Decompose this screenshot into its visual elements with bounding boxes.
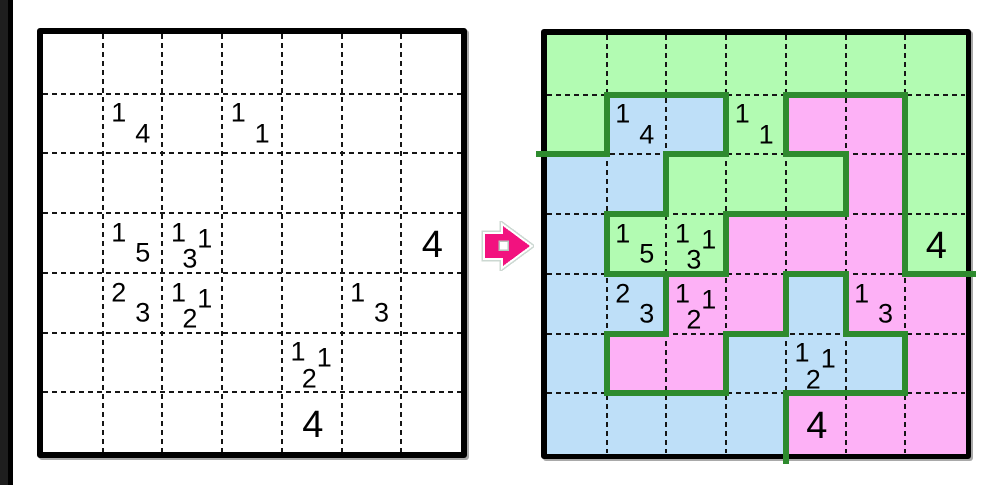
clue-digit: 4 [135, 120, 150, 147]
region-border-segment [783, 271, 849, 277]
clue-cell: 4 [282, 392, 342, 452]
clue-digit: 3 [878, 300, 893, 327]
clue-digit: 5 [135, 240, 150, 267]
solution-cell [846, 35, 906, 95]
solution-cell [786, 154, 846, 214]
solution-cell [547, 274, 607, 334]
clue-digit: 3 [639, 300, 654, 327]
solution-cell [726, 393, 786, 453]
clue-digit: 2 [615, 280, 630, 307]
clue-digit: 1 [197, 285, 212, 312]
clue-cell: 121 [162, 273, 222, 333]
region-border-segment [663, 151, 669, 217]
clue-digit: 1 [350, 279, 365, 306]
solution-cell [726, 35, 786, 95]
region-border-segment [783, 92, 849, 98]
solution-cell [726, 214, 786, 274]
solution-grid: 141115131423121131214 [541, 29, 971, 459]
solution-cell [547, 334, 607, 394]
solution-cell [726, 154, 786, 214]
clue-digit: 4 [639, 121, 654, 148]
clue-cell: 14 [607, 95, 667, 155]
clue-cell: 121 [282, 333, 342, 393]
clue-digit: 1 [794, 340, 809, 367]
region-border-segment [902, 92, 908, 158]
solution-cell [905, 95, 965, 155]
clue-digit: 4 [422, 226, 443, 264]
clue-cell: 11 [222, 94, 282, 154]
clue-digit: 1 [111, 219, 126, 246]
solution-cell [666, 154, 726, 214]
solution-cell [786, 274, 846, 334]
solution-cell [905, 154, 965, 214]
solution-cell [846, 95, 906, 155]
solution-cell [547, 154, 607, 214]
clue-cell: 15 [103, 213, 163, 273]
transform-arrow-icon [472, 221, 534, 271]
clue-digit: 3 [182, 246, 197, 273]
solution-cell [905, 334, 965, 394]
clue-digit: 2 [686, 306, 701, 333]
arrow-hole [499, 241, 508, 250]
clue-digit: 1 [735, 101, 750, 128]
solution-cell [846, 334, 906, 394]
solution-cell [666, 334, 726, 394]
solution-cell [905, 393, 965, 453]
clue-digit: 3 [135, 299, 150, 326]
region-border-segment [663, 390, 729, 396]
clue-digit: 1 [317, 345, 332, 372]
clue-digit: 1 [171, 219, 186, 246]
clue-digit: 1 [675, 280, 690, 307]
clue-digit: 2 [302, 365, 317, 392]
clue-digit: 1 [255, 120, 270, 147]
clue-digit: 3 [686, 247, 701, 274]
region-border-segment [723, 211, 789, 217]
clue-digit: 4 [302, 406, 323, 444]
clue-digit: 2 [182, 305, 197, 332]
clue-cell: 131 [666, 214, 726, 274]
region-border-segment [843, 151, 849, 217]
clue-digit: 2 [111, 279, 126, 306]
region-border-segment [663, 151, 729, 157]
clue-digit: 1 [675, 220, 690, 247]
solution-cell [905, 274, 965, 334]
solution-cell [846, 393, 906, 453]
clue-digit: 1 [231, 100, 246, 127]
region-border-segment [604, 390, 670, 396]
region-border-segment [783, 271, 789, 337]
clue-digit: 1 [615, 101, 630, 128]
clue-digit: 1 [821, 346, 836, 373]
clue-digit: 1 [701, 226, 716, 253]
clue-digit: 1 [701, 286, 716, 313]
solution-cell [786, 95, 846, 155]
clue-digit: 1 [854, 280, 869, 307]
clue-cell: 4 [786, 393, 846, 453]
solution-cell [547, 35, 607, 95]
clue-cell: 23 [103, 273, 163, 333]
region-border-segment [536, 151, 610, 157]
region-border-segment [723, 331, 729, 397]
solution-cell [786, 214, 846, 274]
region-border-segment [902, 151, 908, 217]
clue-cell: 15 [607, 214, 667, 274]
solution-cell [547, 95, 607, 155]
solution-cell [607, 334, 667, 394]
region-border-segment [843, 390, 909, 396]
clue-cell: 13 [342, 273, 402, 333]
screen-edge-bar [0, 0, 13, 485]
clue-digit: 4 [926, 227, 947, 265]
clue-digit: 4 [806, 407, 827, 445]
solution-cell [786, 35, 846, 95]
solution-cell [726, 334, 786, 394]
solution-cell [607, 154, 667, 214]
solution-cell [666, 95, 726, 155]
clue-digit: 2 [806, 366, 821, 393]
region-border-segment [783, 151, 849, 157]
solution-cell [666, 393, 726, 453]
clue-digit: 1 [290, 339, 305, 366]
clue-cell: 131 [162, 213, 222, 273]
solution-cell [905, 35, 965, 95]
region-border-segment [663, 92, 729, 98]
region-border-segment [902, 331, 908, 397]
clue-cell: 23 [607, 274, 667, 334]
clue-digit: 1 [111, 100, 126, 127]
solution-cell [607, 35, 667, 95]
region-border-segment [843, 92, 909, 98]
solution-cell [666, 35, 726, 95]
clue-digit: 1 [615, 220, 630, 247]
clue-cell: 121 [666, 274, 726, 334]
puzzle-illustration: { "page": { "background": "#ffffff", "ed… [0, 0, 999, 485]
region-border-segment [783, 211, 849, 217]
region-border-segment [604, 331, 610, 397]
solution-cell [726, 274, 786, 334]
clue-cell: 11 [726, 95, 786, 155]
clue-digit: 3 [374, 299, 389, 326]
solution-cell [547, 393, 607, 453]
clue-cell: 4 [905, 214, 965, 274]
solution-cell [846, 154, 906, 214]
solution-cell [846, 214, 906, 274]
clue-cell: 13 [846, 274, 906, 334]
clue-cell: 4 [401, 213, 461, 273]
clue-cell: 121 [786, 334, 846, 394]
solution-cell [607, 393, 667, 453]
solution-cell [547, 214, 607, 274]
clue-digit: 1 [197, 225, 212, 252]
region-border-segment [723, 331, 789, 337]
grid-line-horizontal [43, 391, 461, 393]
clue-cell: 14 [103, 94, 163, 154]
clue-digit: 1 [759, 121, 774, 148]
puzzle-grid: 141115131423121131214 [37, 28, 467, 458]
clue-digit: 5 [639, 241, 654, 268]
clue-digit: 1 [171, 279, 186, 306]
